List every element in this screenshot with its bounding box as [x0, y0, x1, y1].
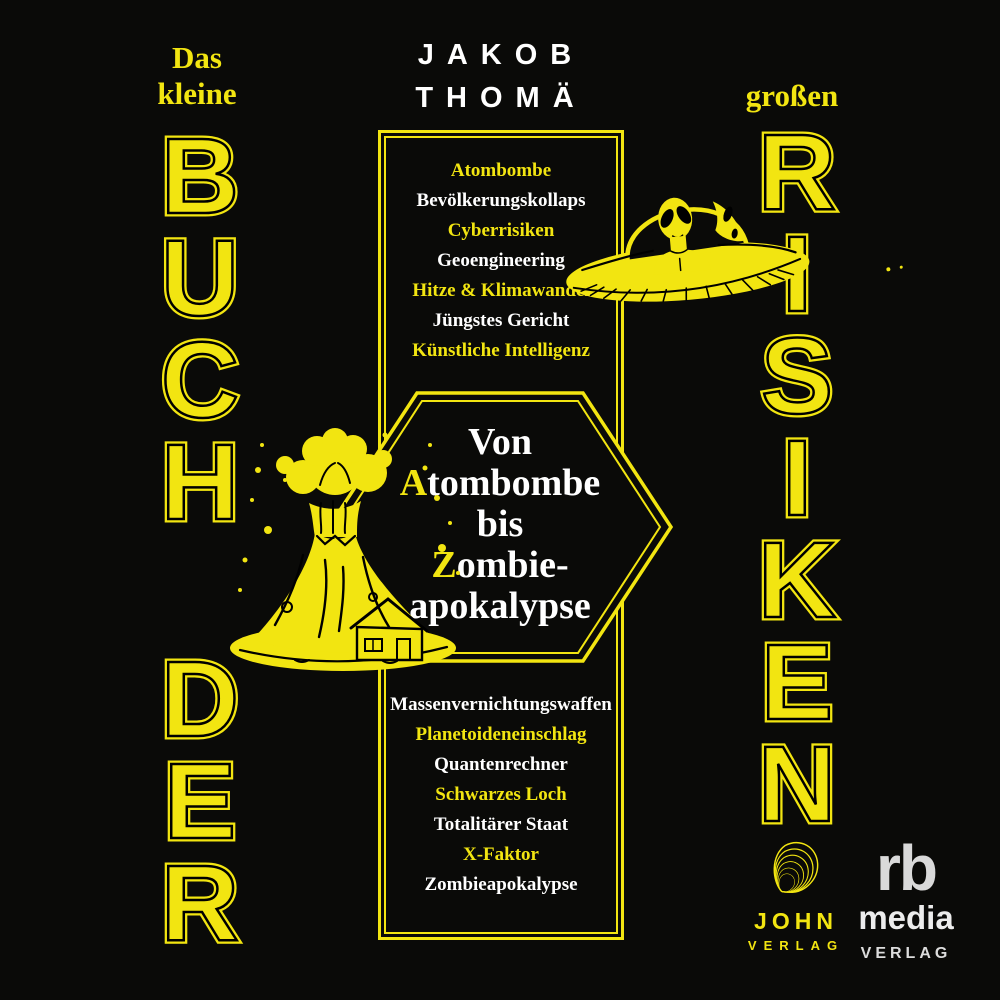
publisher-john-type: VERLAG [740, 939, 852, 952]
ufo-alien-icon [533, 134, 927, 341]
publisher-rb-media: rb media VERLAG [850, 836, 962, 962]
rb-logo: rb [850, 836, 962, 900]
letter-u: UU [120, 224, 280, 326]
title-word-das: Das [127, 40, 267, 76]
volcano-eruption-house-icon [225, 415, 470, 680]
title-prefix-grossen: großen [722, 78, 862, 114]
vertical-title-der: DD EE RR [120, 645, 280, 951]
shell-spiral-logo-icon [769, 838, 823, 898]
author-last-name: THOMÄ [378, 77, 624, 120]
letter-c: CC [120, 326, 280, 428]
letter-e: EE [717, 628, 877, 730]
letter-r: RR [120, 849, 280, 951]
letter-b: BB [120, 122, 280, 224]
publisher-john-verlag: JOHN VERLAG [740, 838, 852, 952]
letter-n: NN [717, 730, 877, 832]
title-prefix-das-kleine: Das kleine [127, 40, 267, 112]
risk-item: X-Faktor [378, 844, 624, 874]
letter-e: EE [120, 747, 280, 849]
author-name: JAKOB THOMÄ [378, 34, 624, 120]
letter-i: II [717, 424, 877, 526]
risk-item: Zombieapokalypse [378, 874, 624, 904]
author-first-name: JAKOB [378, 34, 624, 77]
risk-item: Schwarzes Loch [378, 784, 624, 814]
publisher-john-name: JOHN [740, 910, 852, 933]
risk-item: Künstliche Intelligenz [378, 340, 624, 370]
risk-item: Quantenrechner [378, 754, 624, 784]
letter-s: SS [717, 322, 877, 424]
letter-k: KK [717, 526, 877, 628]
rb-media-label: media [850, 901, 962, 934]
risk-list-bottom: Massenvernichtungswaffen Planetoideneins… [378, 694, 624, 904]
risk-item: Planetoideneinschlag [378, 724, 624, 754]
risk-item: Massenvernichtungswaffen [378, 694, 624, 724]
title-word-kleine: kleine [127, 76, 267, 112]
book-cover: Das kleine JAKOB THOMÄ großen BB UU CC H… [0, 0, 1000, 1000]
rb-verlag-label: VERLAG [850, 946, 962, 962]
risk-item: Totalitärer Staat [378, 814, 624, 844]
